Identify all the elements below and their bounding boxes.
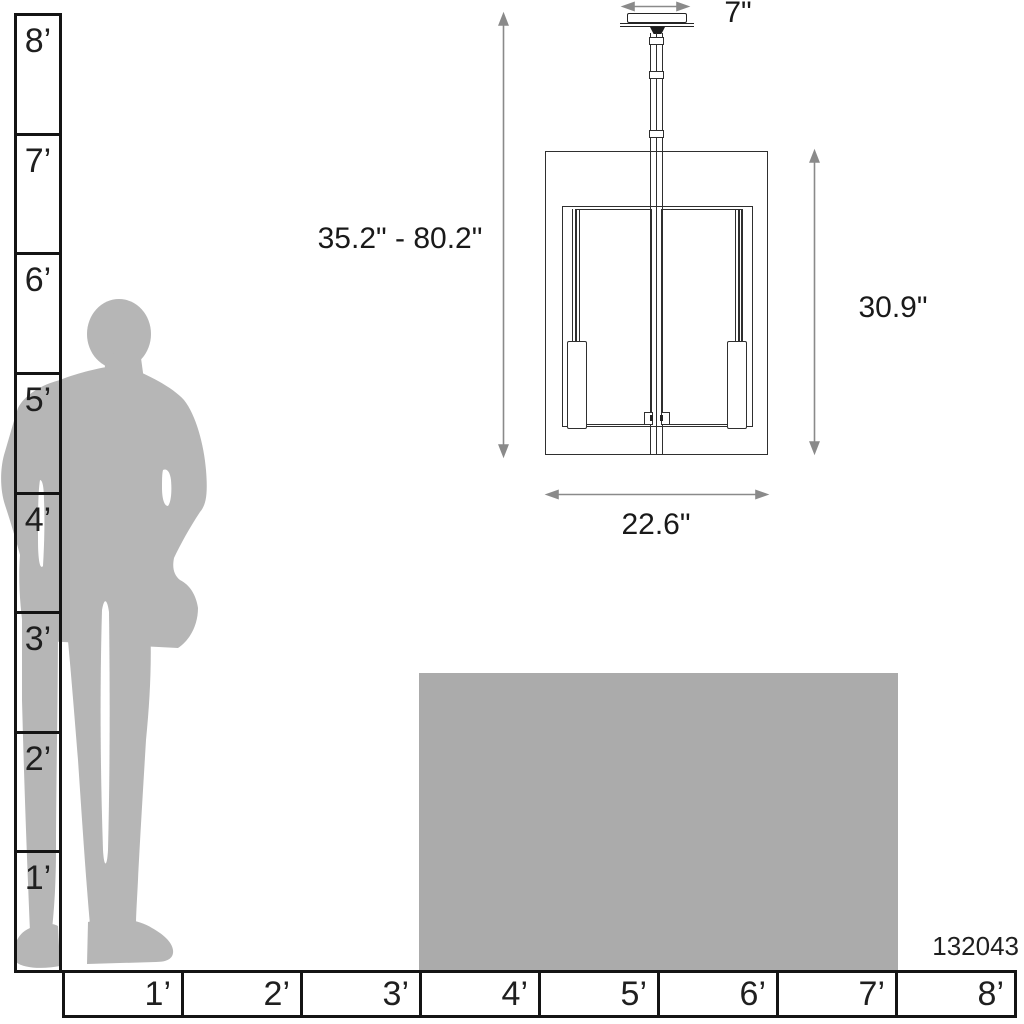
ruler-mark-4ft: 4’ <box>17 495 59 615</box>
ruler-mark-8ft: 8’ <box>898 973 1014 1015</box>
horizontal-feet-ruler: 1’ 2’ 3’ 4’ 5’ 6’ 7’ 8’ <box>62 970 1017 1018</box>
dimension-arrows <box>0 0 1024 1024</box>
connector-detail <box>650 415 653 421</box>
fixture-height-label: 30.9" <box>843 292 943 324</box>
fixture-width-label: 22.6" <box>606 509 706 541</box>
ruler-mark-8ft: 8’ <box>17 16 59 136</box>
left-lamp-cylinder <box>567 341 587 429</box>
hanging-height-arrow <box>499 14 508 456</box>
connector-detail <box>660 415 663 421</box>
ruler-mark-1ft: 1’ <box>65 973 184 1015</box>
ruler-mark-2ft: 2’ <box>17 734 59 854</box>
ruler-mark-5ft: 5’ <box>17 375 59 495</box>
right-lamp-cylinder <box>727 341 747 429</box>
vertical-feet-ruler: 8’ 7’ 6’ 5’ 4’ 3’ 2’ 1’ <box>14 13 62 973</box>
ruler-mark-2ft: 2’ <box>184 973 303 1015</box>
ruler-mark-7ft: 7’ <box>779 973 898 1015</box>
canopy-width-arrow <box>623 3 688 11</box>
ruler-mark-6ft: 6’ <box>17 255 59 375</box>
ruler-mark-5ft: 5’ <box>541 973 660 1015</box>
ruler-mark-3ft: 3’ <box>303 973 422 1015</box>
ruler-mark-1ft: 1’ <box>17 853 59 970</box>
canopy-width-label: 7" <box>712 0 764 29</box>
fixture-height-arrow <box>810 151 819 453</box>
ruler-mark-3ft: 3’ <box>17 614 59 734</box>
product-number: 132043 <box>932 932 1019 960</box>
ruler-mark-6ft: 6’ <box>660 973 779 1015</box>
ruler-mark-7ft: 7’ <box>17 136 59 256</box>
ruler-mark-4ft: 4’ <box>422 973 541 1015</box>
hanging-height-label: 35.2" - 80.2" <box>300 223 500 255</box>
dimension-diagram: 35.2" - 80.2" 30.9" 22.6" 7" 132043 8’ 7… <box>0 0 1024 1024</box>
fixture-width-arrow <box>547 491 767 499</box>
